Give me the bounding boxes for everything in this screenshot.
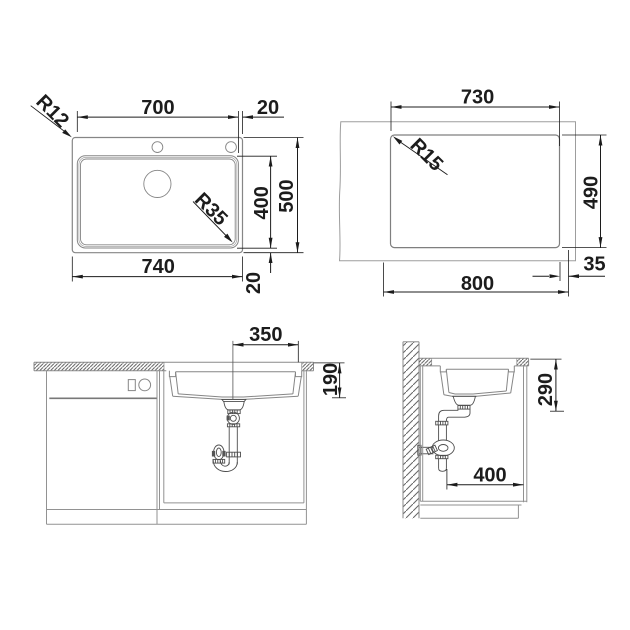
svg-text:700: 700 [141,97,174,119]
svg-text:400: 400 [251,186,273,219]
svg-text:20: 20 [243,272,265,294]
svg-text:290: 290 [535,373,557,406]
svg-text:490: 490 [581,176,603,209]
svg-text:20: 20 [257,97,279,119]
svg-text:350: 350 [249,324,282,346]
svg-text:800: 800 [461,273,494,295]
svg-text:740: 740 [142,256,175,278]
svg-text:500: 500 [276,179,298,212]
svg-text:35: 35 [583,253,605,275]
svg-text:400: 400 [473,464,506,486]
svg-text:190: 190 [320,363,342,396]
svg-text:730: 730 [461,86,494,108]
